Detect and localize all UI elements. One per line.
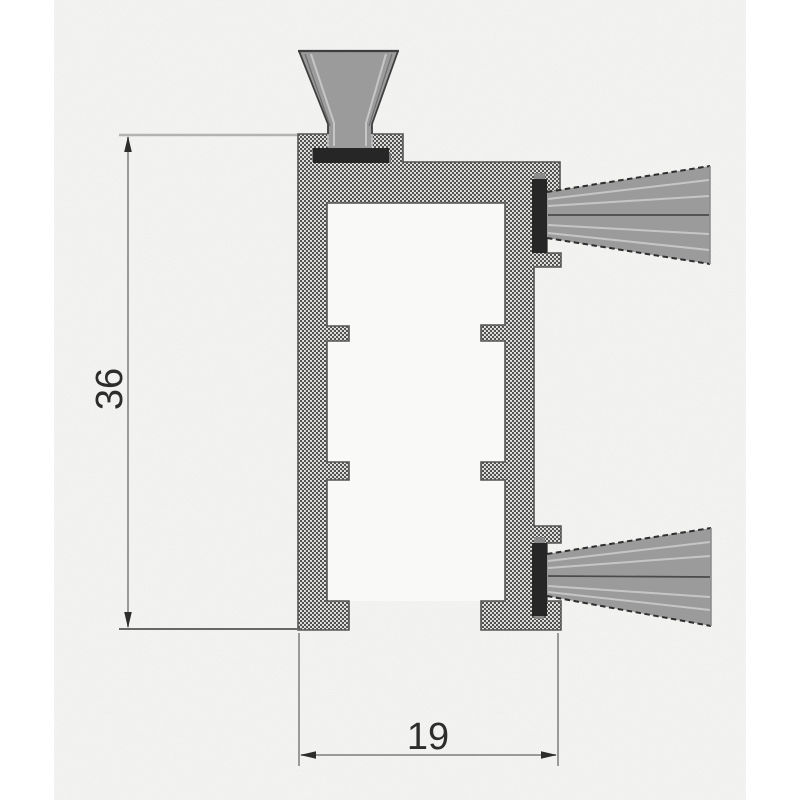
svg-text:36: 36 [89,368,131,410]
svg-text:19: 19 [407,716,449,758]
